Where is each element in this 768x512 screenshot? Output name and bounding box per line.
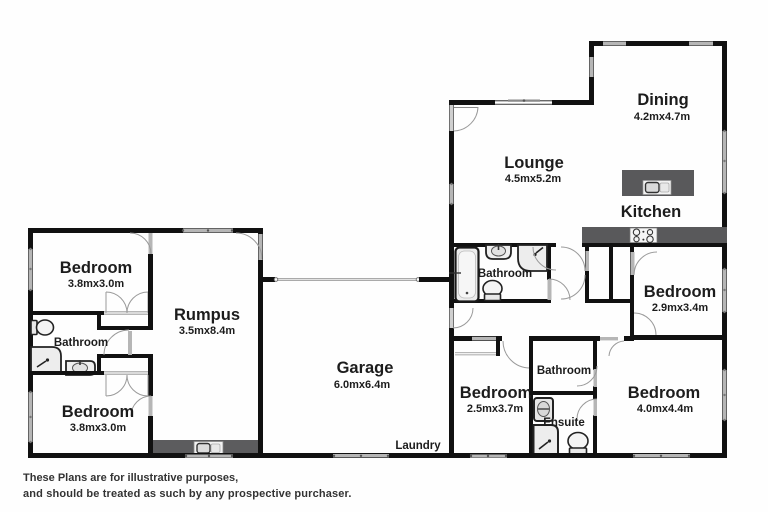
svg-text:Lounge: Lounge xyxy=(504,154,564,172)
svg-text:2.9mx3.4m: 2.9mx3.4m xyxy=(652,302,708,314)
svg-text:3.8mx3.0m: 3.8mx3.0m xyxy=(68,278,124,290)
svg-text:Ensuite: Ensuite xyxy=(543,417,585,429)
svg-text:Bedroom: Bedroom xyxy=(60,259,132,277)
svg-text:3.8mx3.0m: 3.8mx3.0m xyxy=(70,422,126,434)
svg-text:Garage: Garage xyxy=(337,359,394,377)
svg-text:4.5mx5.2m: 4.5mx5.2m xyxy=(505,173,561,185)
svg-text:Bathroom: Bathroom xyxy=(478,268,532,280)
svg-text:Bedroom: Bedroom xyxy=(62,403,134,421)
svg-text:Bathroom: Bathroom xyxy=(54,337,108,349)
svg-text:6.0mx6.4m: 6.0mx6.4m xyxy=(334,379,390,391)
svg-text:Bedroom: Bedroom xyxy=(644,283,716,301)
svg-text:4.2mx4.7m: 4.2mx4.7m xyxy=(634,111,690,123)
svg-text:Kitchen: Kitchen xyxy=(621,203,682,221)
svg-text:Rumpus: Rumpus xyxy=(174,306,240,324)
svg-text:Bathroom: Bathroom xyxy=(537,365,591,377)
svg-text:Bedroom: Bedroom xyxy=(460,384,532,402)
svg-text:Bedroom: Bedroom xyxy=(628,384,700,402)
svg-text:4.0mx4.4m: 4.0mx4.4m xyxy=(637,403,693,415)
svg-text:2.5mx3.7m: 2.5mx3.7m xyxy=(467,403,523,415)
svg-text:Laundry: Laundry xyxy=(395,440,441,452)
svg-text:3.5mx8.4m: 3.5mx8.4m xyxy=(179,325,235,337)
svg-text:Dining: Dining xyxy=(637,91,688,109)
